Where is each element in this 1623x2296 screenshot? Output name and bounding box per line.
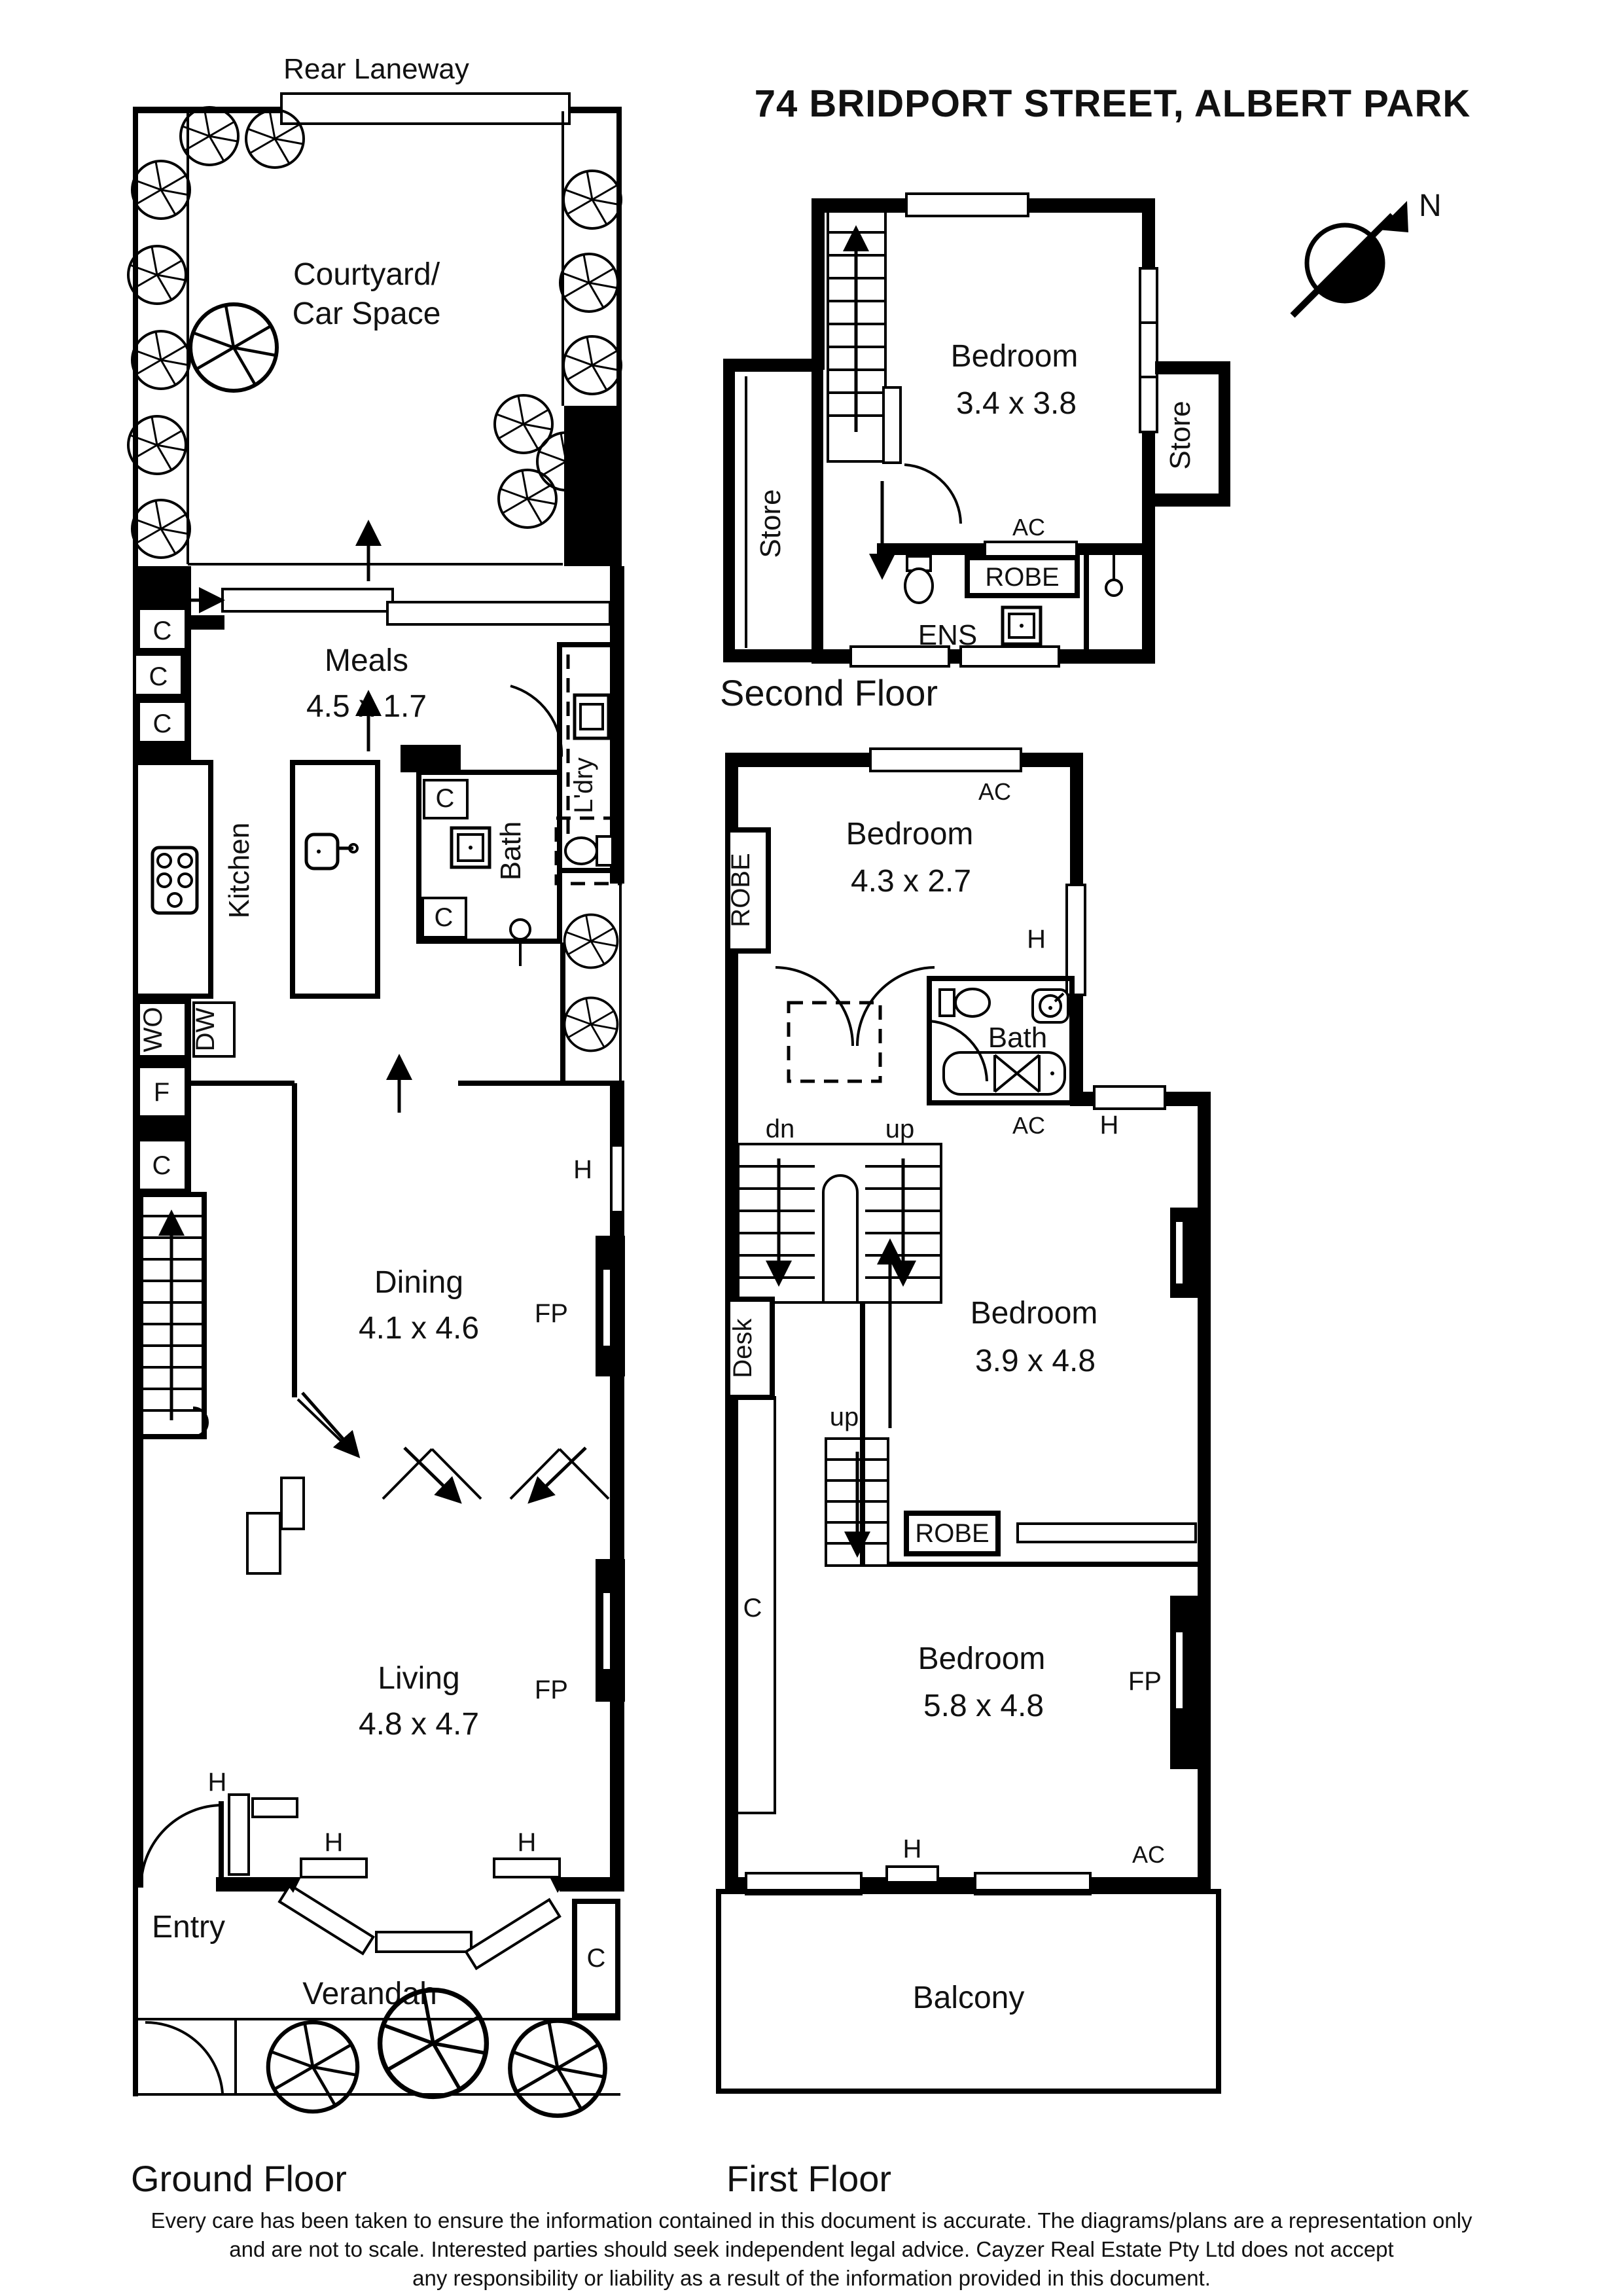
window: [253, 1799, 297, 1817]
bedroom-label: Bedroom: [951, 339, 1079, 374]
lower-stair: [826, 1439, 888, 1566]
basin-icon: [1033, 990, 1068, 1022]
fireplace-label: FP: [535, 1299, 568, 1328]
courtyard-label-2: Car Space: [293, 296, 441, 331]
appliance-column: WO DW F C: [133, 996, 234, 1193]
living-cupboard: [247, 1513, 280, 1573]
ac-label: AC: [1132, 1841, 1165, 1868]
heater-label: H: [573, 1155, 592, 1184]
courtyard-wall-block: [564, 406, 622, 566]
robe-label: ROBE: [726, 853, 755, 927]
disclaimer-line-1: Every care has been taken to ensure the …: [151, 2208, 1472, 2233]
cupboard-label: C: [149, 662, 168, 691]
disclaimer-line-3: any responsibility or liability as a res…: [412, 2266, 1211, 2290]
wall-oven-label: WO: [139, 1007, 168, 1052]
door-arc: [904, 465, 961, 524]
disclaimer: Every care has been taken to ensure the …: [151, 2208, 1472, 2290]
robe-label: ROBE: [985, 563, 1059, 592]
ens-area: AC ROBE ENS: [877, 514, 1155, 655]
balcony-label: Balcony: [913, 1981, 1025, 2015]
vanity-icon: [452, 828, 490, 867]
living-dims: 4.8 x 4.7: [359, 1707, 479, 1742]
washer-icon: [575, 695, 609, 738]
meals-cupboards: C C C: [133, 566, 191, 762]
dn-label: dn: [766, 1115, 795, 1143]
heater-label: H: [1100, 1111, 1119, 1139]
page-title: 74 BRIDPORT STREET, ALBERT PARK: [755, 82, 1471, 125]
bathtub-icon: [944, 1052, 1065, 1094]
fridge-label: F: [154, 1078, 169, 1107]
french-doors: [281, 1393, 609, 1529]
bath-label: Bath: [495, 821, 527, 881]
cupboard-label: C: [152, 1151, 171, 1180]
store-right: Store: [1155, 361, 1230, 507]
light-court: [563, 884, 620, 1083]
floorplan-canvas: 74 BRIDPORT STREET, ALBERT PARK N Rear L…: [0, 0, 1623, 2296]
fireplace-label: FP: [1128, 1667, 1162, 1696]
courtyard-label-1: Courtyard/: [293, 257, 440, 292]
second-floor-plan: Store Store Bedroom 3.4 x 3.8: [720, 194, 1230, 713]
disclaimer-line-2: and are not to scale. Interested parties…: [229, 2237, 1393, 2261]
north-compass-icon: N: [1293, 188, 1442, 315]
first-floor-bath: Bath: [929, 978, 1072, 1103]
cupboard-label: C: [153, 709, 172, 738]
robe-label: ROBE: [915, 1519, 989, 1548]
window: [1094, 1086, 1165, 1109]
bedroom-dims: 4.3 x 2.7: [851, 864, 971, 899]
heater-label: H: [325, 1828, 344, 1857]
cupboard-label: C: [743, 1594, 762, 1623]
floorplan-page: 74 BRIDPORT STREET, ALBERT PARK N Rear L…: [0, 0, 1623, 2296]
first-floor-plan: AC Bedroom 4.3 x 2.7 H ROBE Bath: [719, 749, 1219, 2199]
balcony-area: Balcony: [719, 1892, 1219, 2091]
up-label: up: [830, 1403, 859, 1431]
first-floor-caption: First Floor: [726, 2158, 891, 2199]
vanity-icon: [1003, 607, 1041, 644]
window-band-right: [1140, 268, 1157, 432]
hook-icon: [1106, 555, 1122, 596]
living-label: Living: [378, 1661, 459, 1696]
bedroom-label: Bedroom: [918, 1641, 1046, 1676]
ac-label: AC: [1012, 514, 1045, 541]
ground-floor-plan: Rear Laneway Court: [128, 53, 625, 2116]
courtyard-trees: [128, 107, 621, 558]
bedroom-label: Bedroom: [846, 817, 974, 852]
kitchen-island: [293, 762, 378, 996]
gate-arc: [145, 2022, 223, 2093]
robe-left: ROBE: [726, 830, 768, 951]
toilet-icon: [565, 836, 613, 865]
second-floor-stairs: [828, 209, 961, 575]
window: [887, 1867, 938, 1882]
robe-bedroom2: ROBE: [888, 1513, 1211, 1564]
store-label: Store: [755, 489, 787, 558]
laundry-door-arc: [510, 686, 562, 757]
desk-area: Desk: [728, 1299, 772, 1397]
bedroom-dims: 3.9 x 4.8: [975, 1344, 1096, 1378]
ens-label: ENS: [918, 619, 977, 651]
rear-window-band: [188, 589, 610, 630]
window: [985, 542, 1077, 556]
bath-label: Bath: [988, 1022, 1048, 1054]
toilet-icon: [905, 556, 933, 603]
fireplace-label: FP: [535, 1676, 568, 1704]
laneway-gate: [281, 94, 569, 124]
cupboard-label: C: [436, 784, 455, 813]
ground-stairs: [139, 1194, 207, 1437]
bedroom-label: Bedroom: [971, 1296, 1098, 1331]
window: [883, 387, 901, 463]
ac-label: AC: [1012, 1112, 1045, 1139]
heater-label: H: [518, 1828, 537, 1857]
window: [494, 1859, 560, 1877]
up-label: up: [885, 1115, 915, 1143]
window: [301, 1859, 366, 1877]
window: [611, 1145, 623, 1212]
window: [229, 1795, 249, 1874]
window: [906, 194, 1028, 216]
stove-icon: [152, 848, 197, 913]
cupboard-label: C: [153, 617, 172, 645]
second-floor-caption: Second Floor: [720, 672, 938, 713]
dining-fireplace: FP: [535, 1236, 625, 1376]
dining-dims: 4.1 x 4.6: [359, 1311, 479, 1346]
cupboard-label: C: [587, 1944, 606, 1973]
toilet-icon: [940, 989, 990, 1016]
meals-dims: 4.5 x 1.7: [306, 689, 427, 724]
bedroom-dims: 5.8 x 4.8: [923, 1689, 1044, 1723]
store-label: Store: [1164, 401, 1196, 469]
bay-window: [279, 1877, 568, 1968]
window: [870, 749, 1021, 771]
ground-fences: [133, 94, 622, 2096]
entry-label: Entry: [152, 1910, 225, 1945]
chimney-bedroom2: [1170, 1208, 1211, 1298]
ground-floor-caption: Ground Floor: [131, 2158, 347, 2199]
meals-label: Meals: [325, 643, 408, 678]
void-outline: [789, 1003, 880, 1081]
dishwasher-label: DW: [191, 1007, 220, 1051]
landing-doors: [776, 967, 935, 1081]
heater-label: H: [1027, 925, 1046, 954]
rear-laneway-label: Rear Laneway: [283, 53, 469, 85]
entry-door-arc: [141, 1805, 221, 1880]
shelf: [1018, 1524, 1196, 1542]
heater-label: H: [208, 1768, 227, 1797]
kitchen-label: Kitchen: [223, 823, 255, 919]
laundry-label: L'dry: [569, 757, 598, 813]
heater-label: H: [903, 1835, 922, 1863]
north-label: N: [1419, 188, 1442, 223]
ac-label: AC: [978, 778, 1011, 805]
store-left: Store: [723, 359, 823, 662]
first-floor-stairs: dn up: [738, 1115, 941, 1302]
living-fireplace: FP: [535, 1559, 625, 1704]
desk-label: Desk: [728, 1318, 757, 1378]
chimney-bedroom3: FP: [1128, 1596, 1211, 1769]
bedroom-dims: 3.4 x 3.8: [956, 386, 1077, 421]
cupboard-label: C: [435, 903, 454, 932]
dining-label: Dining: [374, 1265, 463, 1300]
